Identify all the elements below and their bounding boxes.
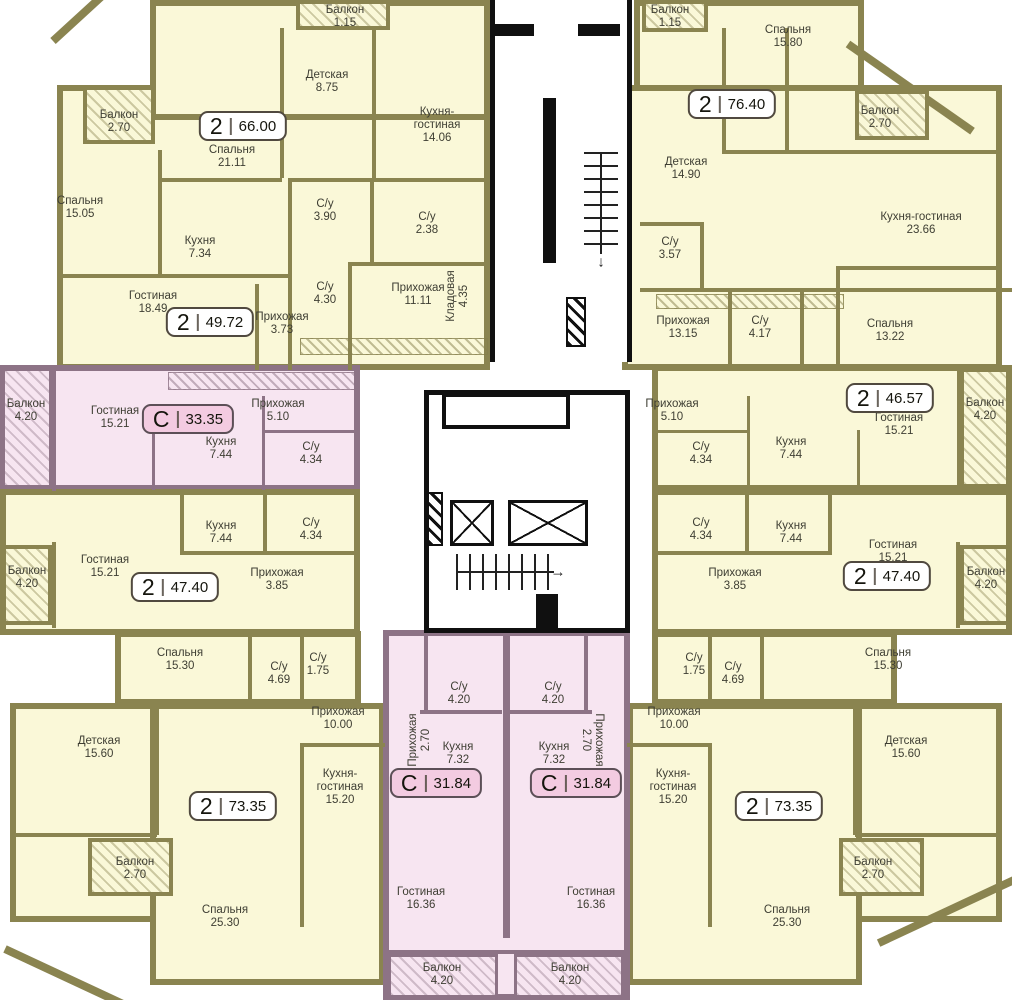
wardrobe-hatch [656, 294, 844, 309]
vestibule [442, 393, 570, 429]
apartment-badge[interactable]: 247.40 [131, 572, 219, 602]
badge-divider [877, 390, 879, 407]
wall [760, 631, 764, 705]
shaft-hatch [566, 297, 586, 347]
room-area: 4.34 [690, 454, 712, 467]
wall [700, 222, 704, 290]
wall [180, 489, 184, 553]
wall [640, 222, 704, 226]
room-name: Кухня-гостиная [302, 768, 378, 794]
room-area: 7.34 [185, 248, 216, 261]
wall [492, 24, 534, 36]
room-area: 7.44 [206, 449, 237, 462]
room-label: Прихожая5.10 [645, 398, 698, 424]
wall [160, 178, 282, 182]
room-name: Балкон [116, 856, 155, 869]
room-label: Прихожая3.85 [708, 567, 761, 593]
wall [52, 365, 56, 491]
room-area: 3.73 [255, 324, 308, 337]
room-name: Прихожая [656, 315, 709, 328]
room-name: Кухня [539, 741, 570, 754]
room-label: Гостиная15.21 [91, 405, 139, 431]
room-label: Детская14.90 [665, 156, 708, 182]
room-area: 2.38 [416, 224, 438, 237]
room-area: 8.75 [306, 82, 349, 95]
room-label: Детская15.60 [885, 735, 928, 761]
room-name: Прихожая [255, 311, 308, 324]
badge-rooms: 2 [857, 387, 870, 410]
room-area: 4.20 [962, 579, 1010, 592]
wall [578, 24, 620, 36]
room-name: С/у [314, 281, 336, 294]
room-name: Гостиная [869, 539, 917, 552]
apartment-badge[interactable]: 273.35 [189, 791, 277, 821]
room-name: Балкон [551, 962, 590, 975]
wall [288, 178, 292, 370]
room-name: Спальня [764, 904, 810, 917]
room-area: 10.00 [311, 719, 364, 732]
room-name: Гостиная [875, 412, 923, 425]
room-name: Прихожая [311, 706, 364, 719]
badge-rooms: 2 [142, 576, 155, 599]
room-name: Детская [885, 735, 928, 748]
wall [543, 98, 556, 263]
room-label: С/у4.34 [690, 441, 712, 467]
room-area: 10.00 [647, 719, 700, 732]
room-label: Спальня21.11 [209, 144, 255, 170]
badge-divider [565, 775, 567, 792]
apartment-badge[interactable]: 266.00 [199, 111, 287, 141]
wardrobe-hatch [168, 372, 360, 390]
room-label: Прихожая10.00 [311, 706, 364, 732]
room-label: С/у4.34 [300, 517, 322, 543]
room-label: Кухня7.34 [185, 235, 216, 261]
room-area: 16.36 [397, 899, 445, 912]
room-area: 21.11 [209, 157, 255, 170]
badge-area: 49.72 [206, 314, 244, 331]
room-label: Кухня-гостиная23.66 [865, 211, 977, 237]
wall [57, 274, 289, 278]
room-name: Кухня-гостиная [399, 106, 475, 132]
room-area: 5.10 [645, 411, 698, 424]
room-name: С/у [268, 661, 290, 674]
room-label: Прихожая11.11 [391, 282, 444, 308]
room-area: 11.11 [391, 295, 444, 308]
room-area: 1.75 [307, 665, 329, 678]
wall [155, 703, 159, 835]
room-name: Балкон [961, 397, 1009, 410]
room-name: Прихожая [407, 713, 420, 766]
room-label: С/у4.34 [300, 441, 322, 467]
room-area: 2.70 [100, 122, 139, 135]
room-name: Прихожая [250, 567, 303, 580]
room-name: Спальня [157, 647, 203, 660]
staircase-line [458, 571, 554, 573]
room-name: Прихожая [645, 398, 698, 411]
room-name: Кухня [185, 235, 216, 248]
room-area: 4.20 [3, 578, 51, 591]
room-name: Гостиная [91, 405, 139, 418]
room-area: 1.15 [326, 17, 365, 30]
room-name: Гостиная [397, 886, 445, 899]
room-area: 15.30 [865, 660, 911, 673]
room-label: Балкон4.20 [3, 565, 51, 591]
room-label: С/у4.30 [314, 281, 336, 307]
room-name: С/у [307, 652, 329, 665]
wall [857, 430, 860, 490]
room-name: Спальня [867, 318, 913, 331]
badge-area: 47.40 [883, 568, 921, 585]
room-area: 1.15 [651, 17, 690, 30]
badge-rooms: 2 [200, 795, 213, 818]
room-area: 15.80 [765, 37, 811, 50]
room-area: 4.69 [722, 674, 744, 687]
room-label: Гостиная15.21 [875, 412, 923, 438]
room-area: 4.34 [300, 530, 322, 543]
room-name: Прихожая [592, 713, 605, 766]
room-area: 25.30 [764, 917, 810, 930]
apartment-badge[interactable]: С31.84 [530, 768, 622, 798]
stairs-down-arrow: ↓ [597, 255, 605, 270]
room-area: 4.20 [542, 694, 564, 707]
badge-rooms: 2 [746, 795, 759, 818]
badge-area: 31.84 [434, 775, 472, 792]
room-name: Гостиная [129, 290, 177, 303]
room-area: 16.36 [567, 899, 615, 912]
room-name: Детская [78, 735, 121, 748]
room-area: 7.44 [206, 533, 237, 546]
wall [280, 28, 284, 178]
room-name: Прихожая [251, 398, 304, 411]
room-area: 7.44 [776, 449, 807, 462]
room-label: Прихожая5.10 [251, 398, 304, 424]
badge-rooms: С [541, 772, 558, 795]
room-area: 2.70 [420, 713, 433, 766]
room-label: Гостиная16.36 [397, 886, 445, 912]
room-name: С/у [659, 236, 681, 249]
room-name: С/у [683, 652, 705, 665]
room-label: Гостиная16.36 [567, 886, 615, 912]
room-name: Гостиная [81, 554, 129, 567]
wall [158, 150, 162, 278]
wall [300, 743, 385, 747]
badge-area: 76.40 [728, 96, 766, 113]
room-name: Балкон [423, 962, 462, 975]
room-name: Гостиная [567, 886, 615, 899]
room-area: 2.70 [854, 869, 893, 882]
room-label: Кухня7.44 [776, 520, 807, 546]
badge-divider [220, 798, 222, 815]
room-label: С/у1.75 [307, 652, 329, 678]
room-area: 15.05 [57, 208, 103, 221]
badge-area: 46.57 [886, 390, 924, 407]
wall [3, 945, 149, 1000]
room-name: Кухня-гостиная [635, 768, 711, 794]
room-name: Прихожая [391, 282, 444, 295]
room-area: 4.17 [749, 328, 771, 341]
room-area: 15.30 [157, 660, 203, 673]
room-label: Кухня-гостиная15.20 [635, 768, 711, 808]
room-area: 3.85 [708, 580, 761, 593]
room-label: Кухня7.44 [206, 436, 237, 462]
room-name: Кухня [776, 436, 807, 449]
room-name: С/у [542, 681, 564, 694]
room-name: С/у [690, 441, 712, 454]
room-area: 4.69 [268, 674, 290, 687]
room-label: Спальня13.22 [867, 318, 913, 344]
balcony [2, 368, 52, 488]
badge-rooms: 2 [699, 93, 712, 116]
room-name: С/у [314, 198, 336, 211]
room-label: С/у4.20 [542, 681, 564, 707]
room-label: Балкон1.15 [326, 4, 365, 30]
badge-area: 33.35 [186, 411, 224, 428]
elevator-shaft [450, 500, 494, 546]
room-area: 4.20 [551, 975, 590, 988]
room-name: Спальня [209, 144, 255, 157]
room-area: 4.20 [2, 411, 50, 424]
room-name: Балкон [651, 4, 690, 17]
room-label: Балкон4.20 [2, 398, 50, 424]
room-name: Кухня [206, 436, 237, 449]
room-area: 4.34 [690, 530, 712, 543]
wall [722, 150, 1002, 154]
badge-divider [425, 775, 427, 792]
wall [836, 266, 1002, 270]
badge-divider [162, 579, 164, 596]
room-name: С/у [300, 441, 322, 454]
wall [262, 430, 360, 433]
wall [300, 631, 304, 705]
room-area: 14.06 [399, 133, 475, 146]
wall [652, 430, 750, 433]
badge-rooms: 2 [177, 311, 190, 334]
room-label: Балкон4.20 [962, 566, 1010, 592]
room-label: Спальня25.30 [202, 904, 248, 930]
wall [52, 542, 56, 628]
wall [584, 632, 588, 712]
wall [348, 262, 490, 266]
room-name: Спальня [57, 195, 103, 208]
wall [288, 178, 490, 182]
room-name: Кладовая [445, 270, 458, 322]
stairs-right-arrow: → [551, 565, 566, 580]
room-name: С/у [300, 517, 322, 530]
room-area: 15.21 [81, 567, 129, 580]
wall [640, 288, 1012, 292]
room-area: 2.70 [861, 118, 900, 131]
room-area: 7.44 [776, 533, 807, 546]
badge-divider [719, 96, 721, 113]
room-name: Кухня [776, 520, 807, 533]
room-name: Детская [665, 156, 708, 169]
wall [652, 551, 832, 555]
room-label: Балкон2.70 [100, 109, 139, 135]
badge-divider [874, 568, 876, 585]
room-area: 3.85 [250, 580, 303, 593]
wardrobe-hatch [300, 338, 488, 355]
room-label: Кухня-гостиная15.20 [302, 768, 378, 808]
room-area: 15.20 [635, 795, 711, 808]
room-label: С/у2.38 [416, 211, 438, 237]
room-label: Спальня15.30 [865, 647, 911, 673]
room-label: Спальня15.30 [157, 647, 203, 673]
room-label: С/у4.20 [448, 681, 470, 707]
apartment-badge[interactable]: С31.84 [390, 768, 482, 798]
room-label: С/у3.90 [314, 198, 336, 224]
room-area: 15.60 [885, 748, 928, 761]
room-area: 7.32 [539, 754, 570, 767]
room-label: Кладовая4.35 [445, 270, 471, 322]
room-name: С/у [690, 517, 712, 530]
room-label: Прихожая13.15 [656, 315, 709, 341]
room-area: 4.20 [961, 410, 1009, 423]
staircase-line [600, 154, 602, 254]
room-area: 2.70 [116, 869, 155, 882]
wall [370, 182, 374, 266]
room-name: Балкон [3, 565, 51, 578]
room-label: Кухня7.44 [206, 520, 237, 546]
badge-rooms: С [153, 408, 170, 431]
room-name: Балкон [326, 4, 365, 17]
room-name: С/у [722, 661, 744, 674]
room-label: Прихожая2.70 [579, 713, 605, 766]
room-area: 4.20 [448, 694, 470, 707]
apartment-badge[interactable]: 273.35 [735, 791, 823, 821]
badge-divider [230, 118, 232, 135]
room-area: 14.90 [665, 169, 708, 182]
room-name: С/у [448, 681, 470, 694]
badge-area: 73.35 [229, 798, 267, 815]
badge-area: 66.00 [239, 118, 277, 135]
room-area: 15.21 [91, 418, 139, 431]
room-name: Балкон [2, 398, 50, 411]
room-label: С/у4.69 [722, 661, 744, 687]
wall [745, 489, 749, 553]
wall [248, 631, 252, 705]
badge-rooms: С [401, 772, 418, 795]
badge-rooms: 2 [854, 565, 867, 588]
room-name: Кухня [206, 520, 237, 533]
room-name: Спальня [202, 904, 248, 917]
room-name: Балкон [100, 109, 139, 122]
room-name: С/у [749, 315, 771, 328]
room-label: Балкон2.70 [861, 105, 900, 131]
room-name: Спальня [765, 24, 811, 37]
room-area: 13.22 [867, 331, 913, 344]
room-area: 13.15 [656, 328, 709, 341]
room-name: Кухня [443, 741, 474, 754]
room-label: Спальня15.05 [57, 195, 103, 221]
wall [503, 632, 510, 938]
room-label: Детская8.75 [306, 69, 349, 95]
wall [836, 268, 840, 365]
badge-divider [766, 798, 768, 815]
room-area: 2.70 [579, 713, 592, 766]
room-label: Спальня15.80 [765, 24, 811, 50]
room-label: С/у4.69 [268, 661, 290, 687]
badge-divider [177, 411, 179, 428]
room-label: С/у4.17 [749, 315, 771, 341]
apartment-badge[interactable]: 247.40 [843, 561, 931, 591]
wall [828, 489, 832, 553]
badge-area: 31.84 [574, 775, 612, 792]
room-area: 5.10 [251, 411, 304, 424]
room-label: Балкон1.15 [651, 4, 690, 30]
room-label: Балкон4.20 [961, 397, 1009, 423]
room-name: Детская [306, 69, 349, 82]
room-label: Балкон4.20 [423, 962, 462, 988]
room-area: 4.35 [458, 270, 471, 322]
room-area: 1.75 [683, 665, 705, 678]
room-label: С/у3.57 [659, 236, 681, 262]
badge-rooms: 2 [210, 115, 223, 138]
badge-area: 47.40 [171, 579, 209, 596]
room-name: Балкон [854, 856, 893, 869]
badge-area: 73.35 [775, 798, 813, 815]
room-area: 7.32 [443, 754, 474, 767]
room-label: Кухня-гостиная14.06 [399, 106, 475, 146]
room-label: Детская15.60 [78, 735, 121, 761]
apartment-badge[interactable]: 276.40 [688, 89, 776, 119]
room-label: Балкон2.70 [116, 856, 155, 882]
wall [180, 551, 360, 555]
room-label: Балкон4.20 [551, 962, 590, 988]
room-label: Прихожая3.73 [255, 311, 308, 337]
wall [263, 489, 267, 553]
apartment-badge[interactable]: С33.35 [142, 404, 234, 434]
room-area: 15.21 [875, 425, 923, 438]
balcony [960, 368, 1010, 488]
wall [424, 632, 428, 712]
room-label: Прихожая10.00 [647, 706, 700, 732]
wall [708, 631, 712, 705]
room-label: Кухня7.44 [776, 436, 807, 462]
wall [747, 396, 750, 490]
room-label: С/у4.34 [690, 517, 712, 543]
room-area: 15.20 [302, 795, 378, 808]
wall [853, 703, 857, 835]
room-label: Прихожая2.70 [407, 713, 433, 766]
room-name: Кухня-гостиная [865, 211, 977, 224]
room-name: Балкон [962, 566, 1010, 579]
room-name: Балкон [861, 105, 900, 118]
wall [10, 833, 157, 837]
apartment-badge[interactable]: 246.57 [846, 383, 934, 413]
shaft-hatch [427, 492, 443, 546]
wall [536, 594, 558, 628]
floor-plan: ↓ → Спальня21.11 Детская8.75 Кухня-гости… [0, 0, 1012, 1000]
wall [627, 743, 712, 747]
room-area: 4.34 [300, 454, 322, 467]
room-label: Кухня7.32 [443, 741, 474, 767]
wall [855, 833, 1002, 837]
room-area: 25.30 [202, 917, 248, 930]
room-area: 3.90 [314, 211, 336, 224]
room-name: С/у [416, 211, 438, 224]
wall [152, 430, 155, 490]
room-label: Балкон2.70 [854, 856, 893, 882]
room-area: 4.20 [423, 975, 462, 988]
wall [372, 28, 376, 178]
room-area: 15.60 [78, 748, 121, 761]
room-area: 4.30 [314, 294, 336, 307]
room-area: 23.66 [865, 224, 977, 237]
apartment-badge[interactable]: 249.72 [166, 307, 254, 337]
badge-divider [197, 314, 199, 331]
room-label: С/у1.75 [683, 652, 705, 678]
elevator-shaft [508, 500, 588, 546]
